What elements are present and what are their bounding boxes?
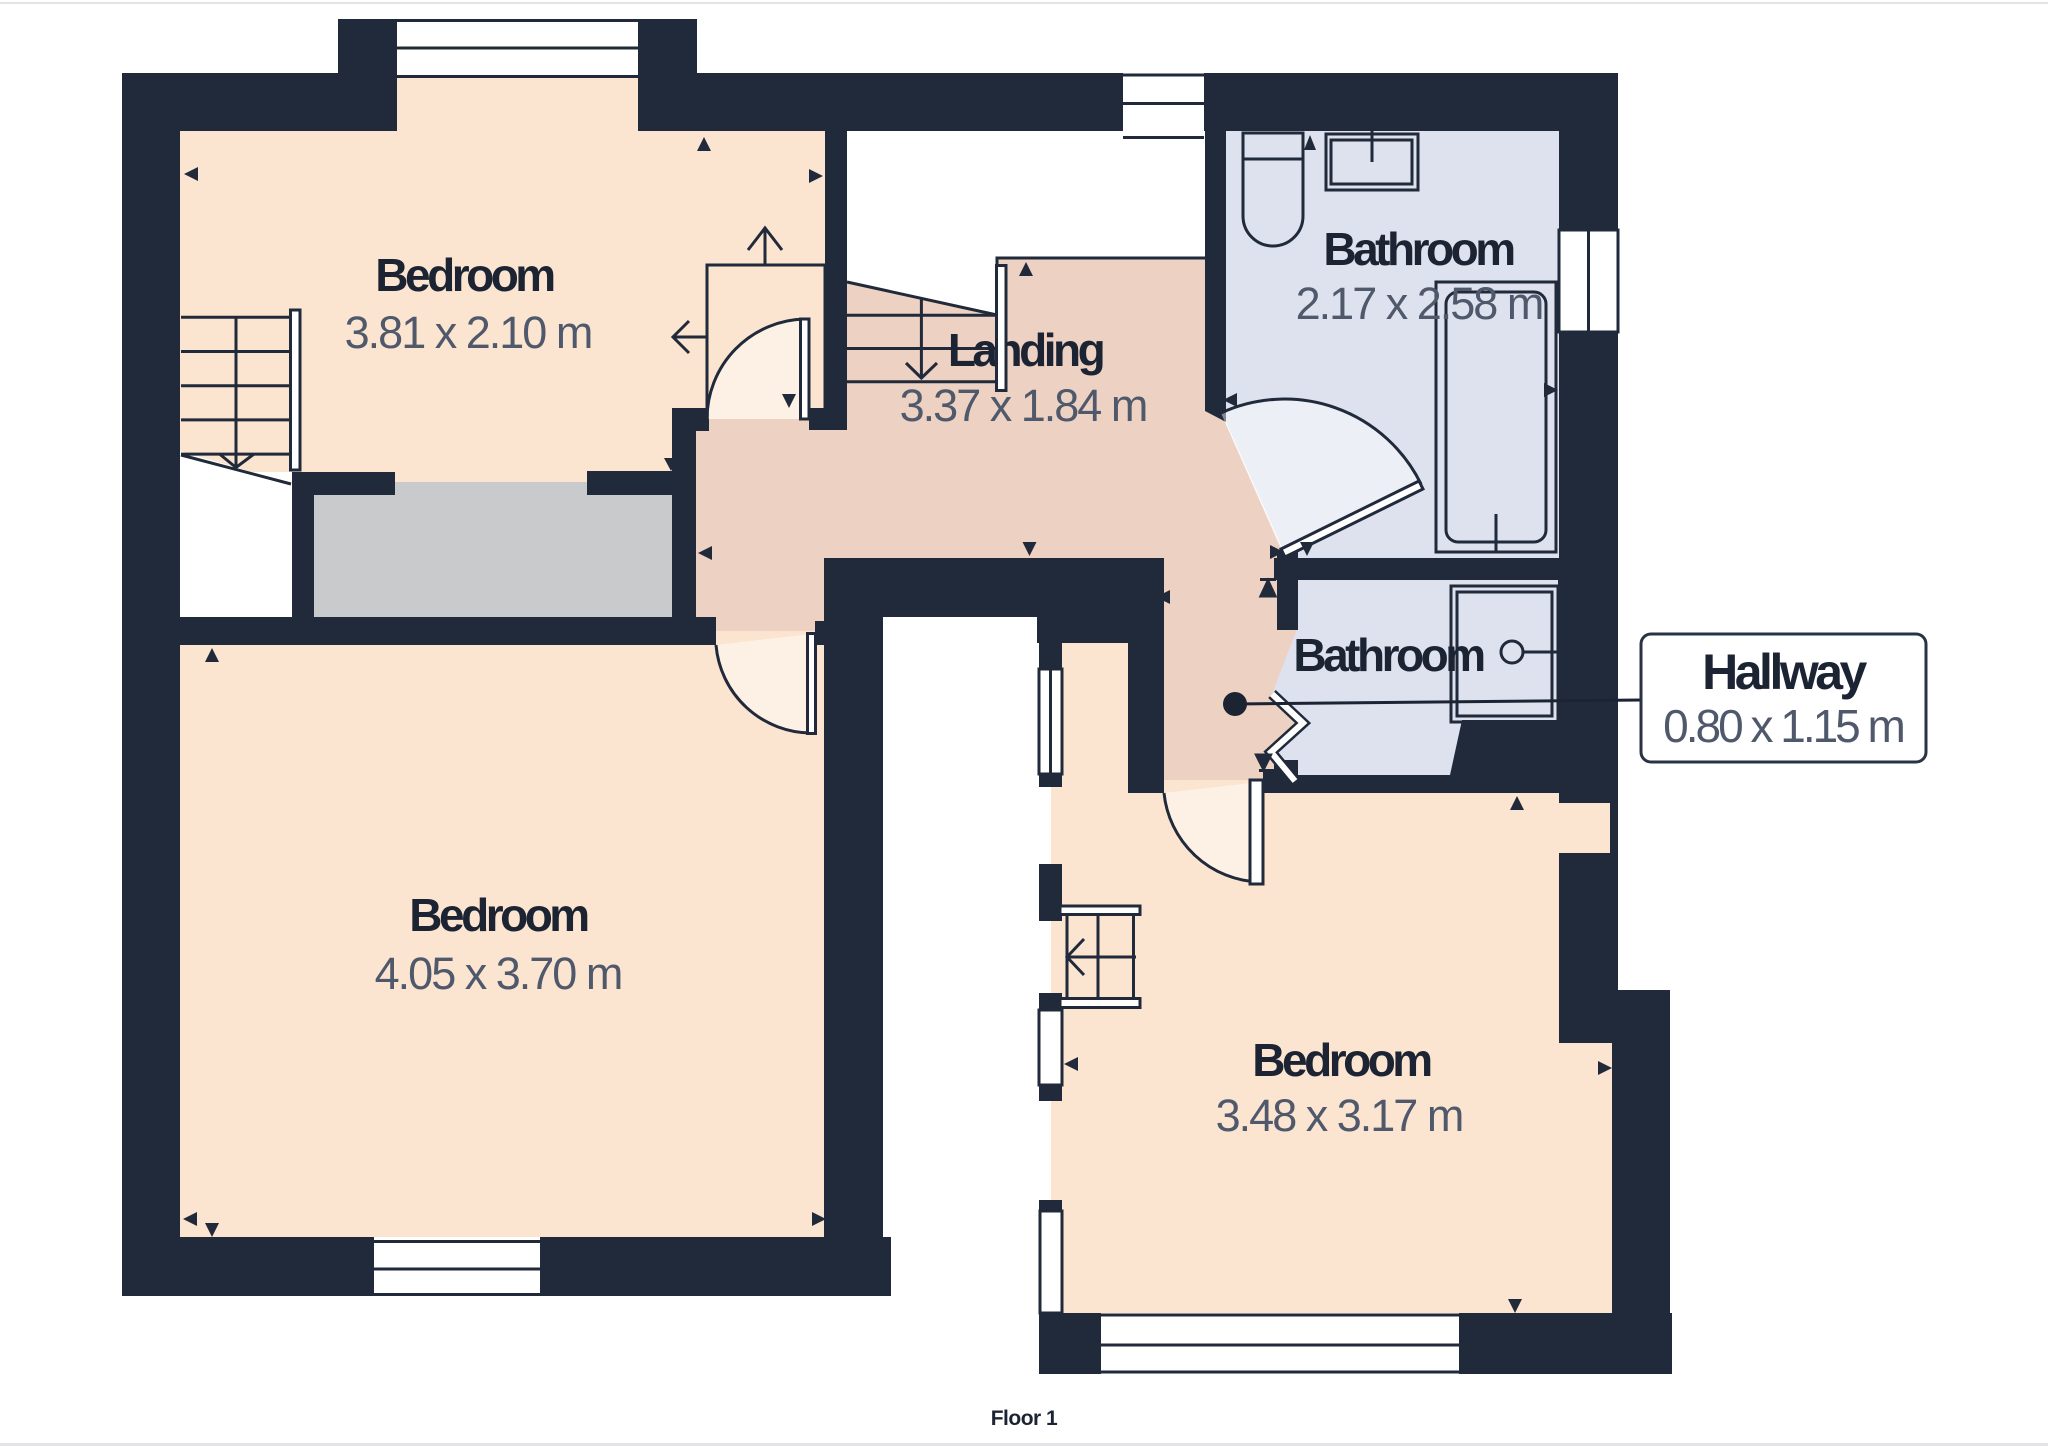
svg-text:3.81 x 2.10 m: 3.81 x 2.10 m: [345, 307, 592, 358]
svg-text:Bedroom: Bedroom: [375, 249, 554, 301]
svg-text:2.17 x 2.58 m: 2.17 x 2.58 m: [1296, 278, 1543, 329]
svg-text:0.80 x 1.15 m: 0.80 x 1.15 m: [1663, 700, 1903, 752]
svg-text:4.05 x 3.70 m: 4.05 x 3.70 m: [375, 948, 622, 999]
svg-text:Landing: Landing: [948, 324, 1104, 376]
svg-text:Bathroom: Bathroom: [1323, 223, 1514, 275]
svg-text:Bathroom: Bathroom: [1293, 629, 1484, 681]
svg-text:Floor 1: Floor 1: [991, 1407, 1058, 1430]
svg-text:Hallway: Hallway: [1702, 644, 1867, 700]
svg-text:3.37 x 1.84 m: 3.37 x 1.84 m: [900, 380, 1147, 431]
svg-text:Bedroom: Bedroom: [409, 889, 588, 941]
svg-text:Bedroom: Bedroom: [1252, 1034, 1431, 1086]
svg-text:3.48 x 3.17 m: 3.48 x 3.17 m: [1216, 1090, 1463, 1141]
